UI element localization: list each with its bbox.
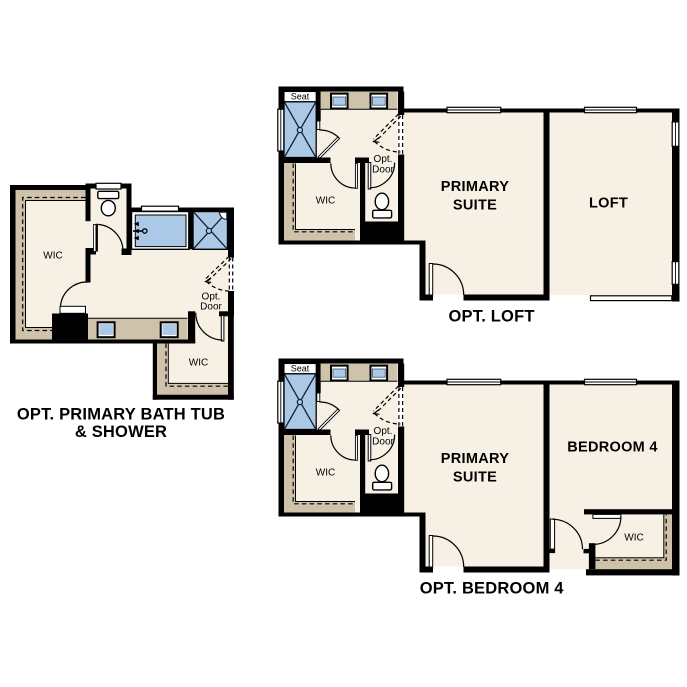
svg-text:& SHOWER: & SHOWER [75, 423, 167, 441]
svg-text:BEDROOM 4: BEDROOM 4 [567, 440, 658, 456]
svg-text:WIC: WIC [624, 533, 643, 544]
svg-text:LOFT: LOFT [589, 196, 628, 212]
svg-text:WIC: WIC [189, 358, 208, 369]
svg-text:OPT. PRIMARY BATH TUB: OPT. PRIMARY BATH TUB [17, 406, 225, 424]
svg-text:WIC: WIC [43, 251, 62, 262]
svg-text:Door: Door [200, 302, 222, 313]
svg-text:OPT. BEDROOM 4: OPT. BEDROOM 4 [420, 580, 565, 598]
svg-text:OPT. LOFT: OPT. LOFT [449, 308, 535, 326]
